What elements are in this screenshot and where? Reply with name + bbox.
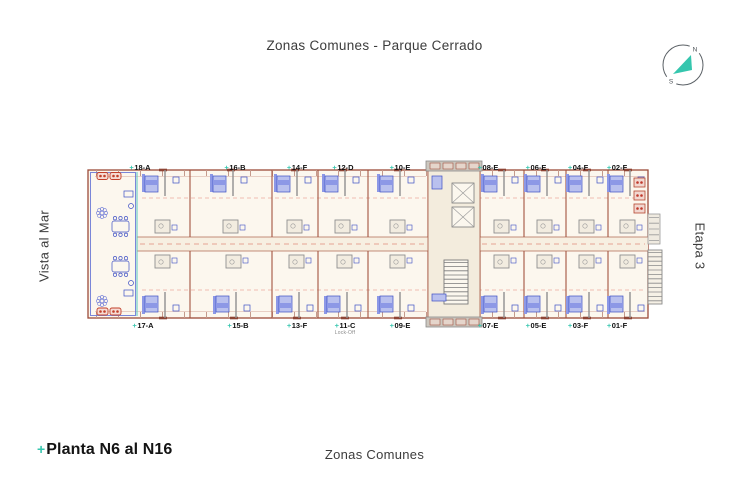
unit-label-14F[interactable]: +14-F	[287, 164, 307, 172]
unit-marker-icon: +	[478, 163, 482, 172]
unit-marker-icon: +	[132, 321, 136, 330]
unit-marker-icon: +	[287, 321, 291, 330]
core-stairs	[444, 260, 468, 304]
unit-label-13F[interactable]: +13-F	[287, 322, 307, 330]
floor-plan	[0, 0, 749, 500]
unit-label-15B[interactable]: +15-B	[227, 322, 248, 330]
unit-label-16B[interactable]: +16-B	[224, 164, 245, 172]
unit-label-08E[interactable]: +08-E	[478, 164, 499, 172]
unit-label-06E[interactable]: +06-E	[526, 164, 547, 172]
central-corridor	[137, 237, 648, 251]
unit-label-09E[interactable]: +09-E	[390, 322, 411, 330]
unit-marker-icon: +	[607, 321, 611, 330]
exterior-stair	[648, 250, 662, 304]
unit-marker-icon: +	[224, 163, 228, 172]
unit-marker-icon: +	[568, 163, 572, 172]
unit-marker-icon: +	[129, 163, 133, 172]
unit-marker-icon: +	[332, 163, 336, 172]
unit-label-18A[interactable]: +18-A	[129, 164, 150, 172]
unit-marker-icon: +	[478, 321, 482, 330]
unit-marker-icon: +	[390, 163, 394, 172]
unit-label-17A[interactable]: +17-A	[132, 322, 153, 330]
unit-marker-icon: +	[390, 321, 394, 330]
unit-label-12D[interactable]: +12-D	[332, 164, 353, 172]
unit-marker-icon: +	[568, 321, 572, 330]
unit-marker-icon: +	[227, 321, 231, 330]
core	[426, 161, 482, 327]
unit-label-11C[interactable]: +11-CLock-Off	[335, 322, 356, 336]
unit-marker-icon: +	[607, 163, 611, 172]
unit-label-10E[interactable]: +10-E	[390, 164, 411, 172]
unit-marker-icon: +	[526, 321, 530, 330]
unit-label-07E[interactable]: +07-E	[478, 322, 499, 330]
unit-label-03F[interactable]: +03-F	[568, 322, 588, 330]
footer-subtitle: Zonas Comunes	[0, 447, 749, 462]
unit-label-05E[interactable]: +05-E	[526, 322, 547, 330]
unit-marker-icon: +	[287, 163, 291, 172]
unit-label-02F[interactable]: +02-F	[607, 164, 627, 172]
unit-marker-icon: +	[526, 163, 530, 172]
unit-label-01F[interactable]: +01-F	[607, 322, 627, 330]
unit-label-04F[interactable]: +04-F	[568, 164, 588, 172]
lock-off-label: Lock-Off	[335, 331, 356, 336]
unit-marker-icon: +	[335, 321, 339, 330]
